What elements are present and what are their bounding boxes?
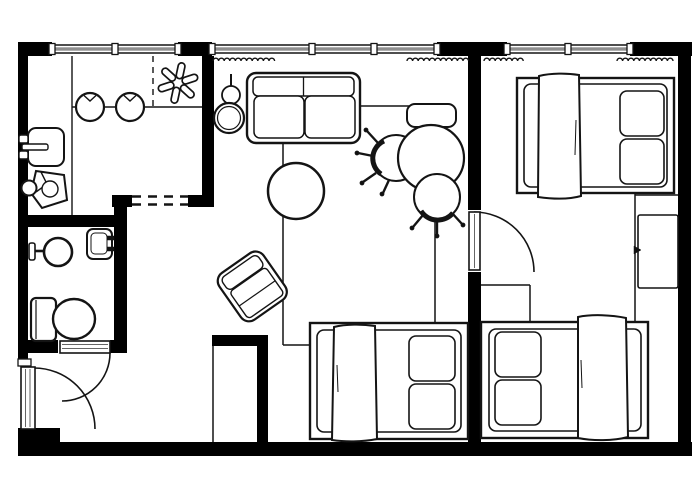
kitchen-range — [22, 171, 68, 208]
breakfast-stool-1 — [76, 93, 104, 121]
kitchen-opening-dashed — [132, 197, 188, 205]
curtain-4 — [617, 58, 673, 61]
bedroom-door — [469, 212, 534, 272]
floor-lamp — [214, 74, 244, 133]
bathroom-door — [60, 341, 110, 401]
window-3 — [504, 44, 633, 55]
sofa — [247, 73, 360, 143]
toilet — [31, 298, 95, 341]
coffee-table — [268, 163, 324, 219]
breakfast-stool-2 — [116, 93, 144, 121]
floor-plan-canvas — [0, 0, 700, 500]
wall-sink — [87, 229, 114, 259]
curtain-2 — [407, 58, 469, 61]
entry-door — [18, 359, 95, 429]
bed-bedroom-bottom — [481, 315, 648, 440]
window-1 — [49, 44, 181, 55]
dining-bench — [407, 104, 456, 127]
armchair — [214, 248, 291, 326]
curtain-3 — [484, 58, 523, 61]
wardrobe — [634, 215, 678, 288]
pedestal-sink — [29, 238, 72, 266]
curtain-1 — [213, 58, 275, 61]
window-2 — [209, 44, 440, 55]
bed-living — [310, 323, 468, 441]
bed-bedroom-top — [517, 74, 674, 199]
ceiling-fan — [157, 62, 198, 104]
floor-plan — [0, 0, 700, 500]
desk-chair-south — [410, 174, 465, 238]
